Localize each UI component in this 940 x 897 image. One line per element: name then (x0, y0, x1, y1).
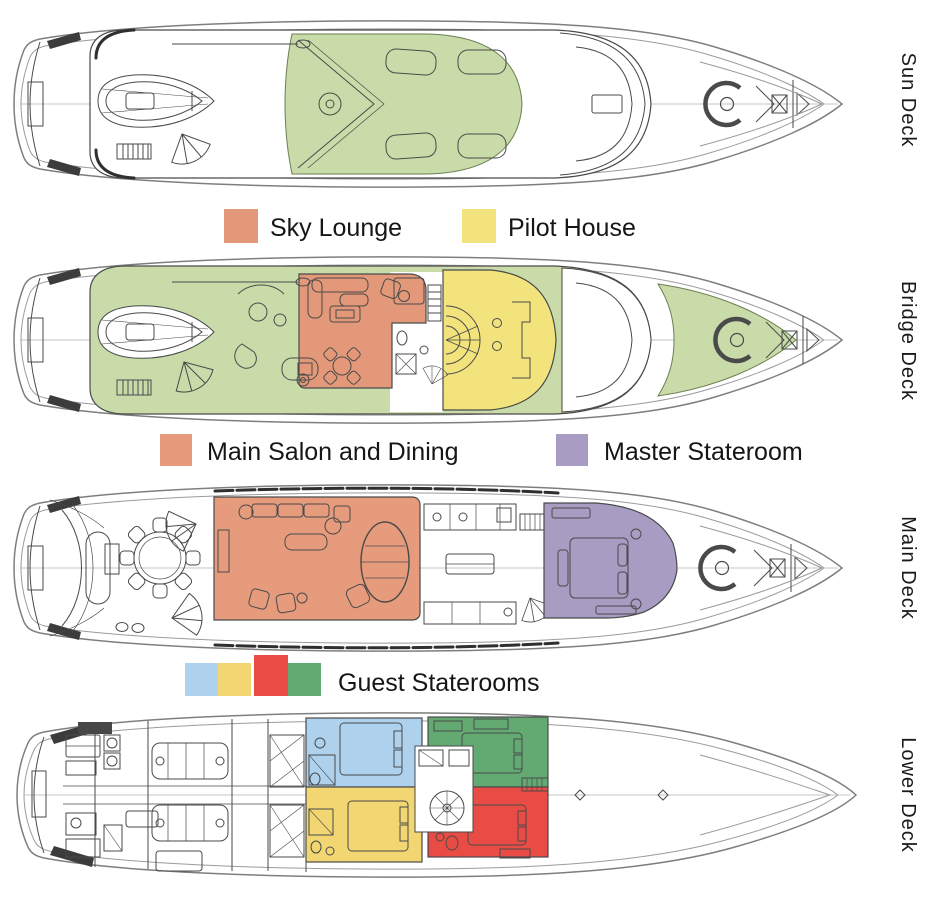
pilot-house-swatch (462, 209, 496, 243)
guest-yellow-swatch (218, 663, 251, 696)
master-stateroom-swatch (556, 434, 588, 466)
yacht-deck-plans: Sky Lounge Pilot House (0, 0, 940, 897)
sky-lounge-swatch (224, 209, 258, 243)
bridge-deck-plan (14, 257, 842, 423)
pilot-house-label: Pilot House (508, 214, 636, 242)
sun-deck-plan (14, 21, 842, 187)
main-deck-label: Main Deck (897, 516, 919, 619)
legend-bridge-main: Main Salon and Dining Master Stateroom (160, 434, 803, 466)
main-deck-plan (14, 485, 842, 651)
lower-deck-label: Lower Deck (897, 737, 919, 853)
main-salon-label: Main Salon and Dining (207, 438, 459, 466)
master-stateroom-label: Master Stateroom (604, 438, 803, 466)
legend-guest: Guest Staterooms (185, 655, 539, 697)
main-salon-swatch (160, 434, 192, 466)
sun-pad-area (285, 34, 522, 174)
sun-deck-label: Sun Deck (897, 53, 919, 148)
deck-labels: Sun Deck Bridge Deck Main Deck Lower Dec… (897, 53, 919, 853)
sky-lounge-label: Sky Lounge (270, 214, 402, 242)
bridge-deck-label: Bridge Deck (897, 281, 919, 401)
legend-sun-bridge: Sky Lounge Pilot House (224, 209, 636, 243)
yacht-deck-plan-page: Sky Lounge Pilot House (0, 0, 940, 897)
stair-landing (415, 746, 473, 832)
guest-staterooms-label: Guest Staterooms (338, 669, 539, 697)
lower-deck-plan (17, 713, 856, 877)
guest-red-swatch (254, 655, 288, 696)
guest-blue-swatch (185, 663, 218, 696)
guest-stateroom-blue (306, 718, 422, 787)
guest-green-swatch (288, 663, 321, 696)
